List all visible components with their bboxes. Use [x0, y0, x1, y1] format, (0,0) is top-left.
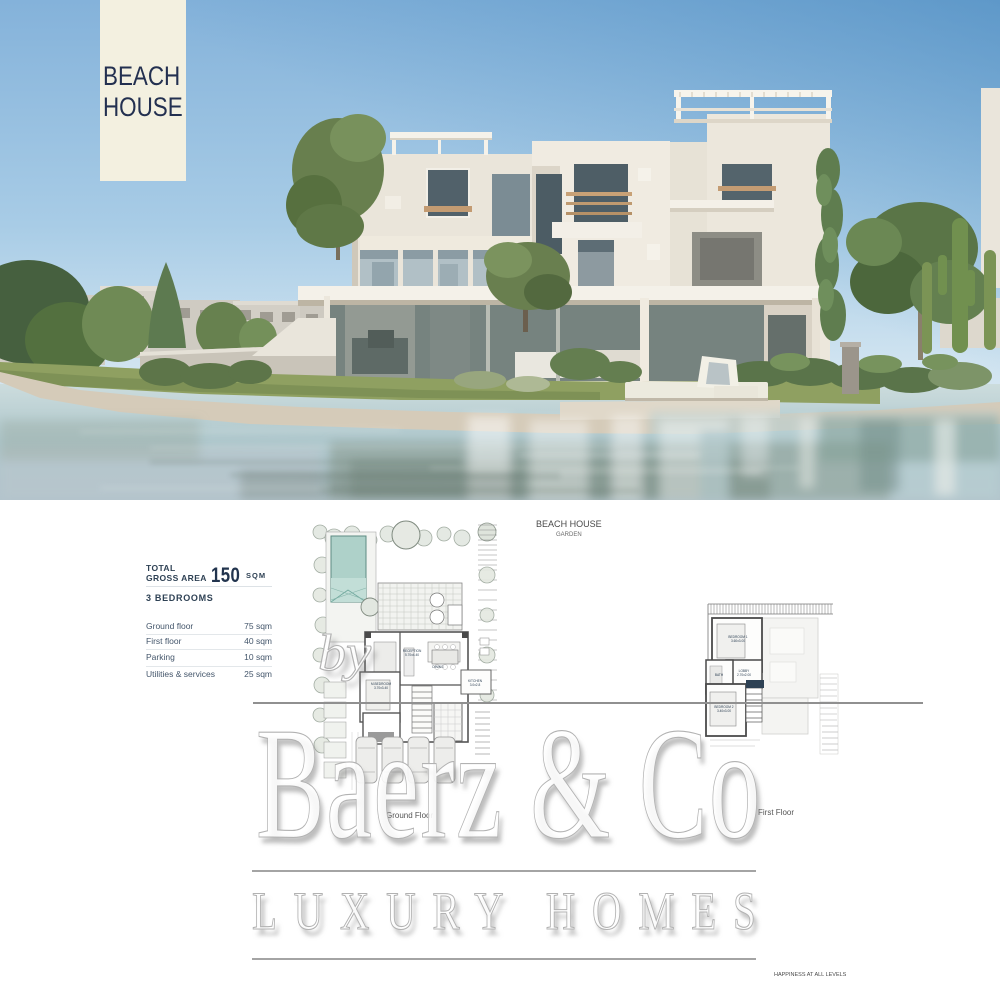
svg-text:BATH: BATH: [715, 673, 724, 677]
svg-text:3.70x3.40: 3.70x3.40: [374, 686, 388, 690]
svg-text:DINING: DINING: [432, 665, 444, 669]
svg-text:5.70x4.40: 5.70x4.40: [405, 653, 419, 657]
svg-text:2.70x2.00: 2.70x2.00: [737, 673, 751, 677]
svg-text:3.60x3.00: 3.60x3.00: [731, 639, 745, 643]
svg-text:3.0x2.8: 3.0x2.8: [470, 683, 481, 687]
